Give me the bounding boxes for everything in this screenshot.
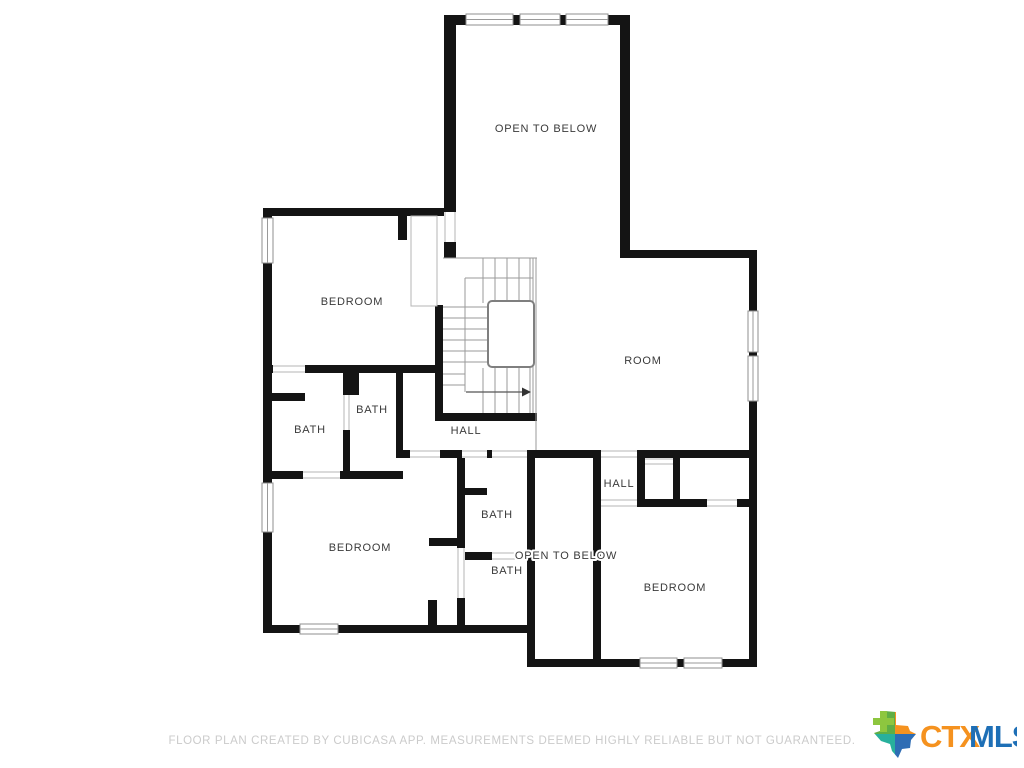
door-leaf [411,216,437,306]
footer-disclaimer: FLOOR PLAN CREATED BY CUBICASA APP. MEAS… [0,735,1024,747]
room-label-hall-right: HALL [604,478,635,490]
door-opening [273,365,305,373]
door-opening [601,499,637,507]
door-opening [457,548,465,598]
room-label-bath-center-lower: BATH [491,565,523,577]
door-opening [410,450,440,458]
window [748,356,758,401]
room-label-bath-left: BATH [294,424,326,436]
door-opening [492,450,527,458]
door-opening [444,212,456,242]
room-label-hall-center: HALL [451,425,482,437]
room-label-open-to-below-top: OPEN TO BELOW [495,123,597,135]
room-label-bedroom-bottom-right: BEDROOM [644,582,706,594]
window [300,624,338,634]
room-label-bath-inner: BATH [356,404,388,416]
logo-text-mls: MLS [969,719,1017,754]
window [520,14,560,25]
room-label-bedroom-bottom-left: BEDROOM [329,542,391,554]
window [748,311,758,352]
door-opening [462,450,487,458]
door-opening [645,459,673,464]
texas-icon [872,706,918,762]
door-opening [343,395,350,430]
stair-direction-arrow-icon [466,388,531,397]
stairwell-void [488,301,534,367]
floor-plan-drawing: OPEN TO BELOW BEDROOM ROOM BATH BATH HAL… [0,0,1024,768]
room-label-bath-center-upper: BATH [481,509,513,521]
floor-plan-page: OPEN TO BELOW BEDROOM ROOM BATH BATH HAL… [0,0,1024,768]
window [566,14,608,25]
door-opening [601,450,637,458]
window [640,658,677,668]
window [262,218,273,263]
door-openings [273,212,737,598]
staircase [443,258,537,450]
door-opening [707,499,737,507]
ctxmls-logo: CTX MLS [872,706,1017,762]
window [262,483,273,532]
room-label-bedroom-top-left: BEDROOM [321,296,383,308]
window [684,658,722,668]
door-opening [303,471,340,479]
room-label-open-to-below-bottom: OPEN TO BELOW [515,550,617,562]
window [466,14,513,25]
room-label-room-right: ROOM [624,355,661,367]
